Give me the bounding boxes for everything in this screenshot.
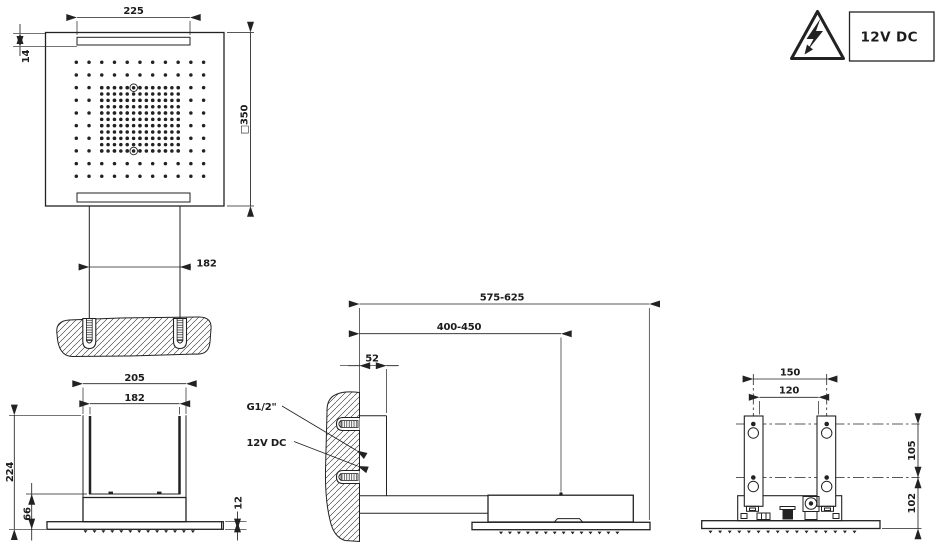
dim-text-182-ceiling: 182	[196, 259, 217, 270]
valve-center	[809, 501, 813, 505]
dim-text-52: 52	[365, 354, 379, 365]
dim-plate-thickness: 12	[225, 496, 247, 540]
mounting-rails	[90, 416, 180, 494]
nozzle-strip	[84, 530, 195, 533]
dim-text-400-450: 400-450	[437, 322, 482, 333]
nozzle-strip	[499, 532, 619, 535]
dim-text-66: 66	[23, 507, 34, 521]
voltage-label: 12V DC	[861, 30, 918, 46]
front-view: 205 182 224 66 12	[5, 373, 247, 541]
technical-drawing-sheet: 225 14 □350 182	[0, 0, 940, 547]
dim-anchor-spacing-h: 150	[753, 368, 826, 380]
plan-view: 225 14 □350	[13, 6, 254, 206]
rail-left	[744, 416, 763, 506]
dim-text-225: 225	[123, 6, 144, 17]
screw-head-left	[109, 492, 114, 494]
power-connection-label: 12V DC	[247, 438, 287, 449]
ceiling-hatch	[57, 317, 211, 357]
nozzle-grid	[75, 61, 206, 178]
electric-warning-badge: 12V DC	[792, 12, 935, 62]
drawing-svg: 225 14 □350 182	[0, 0, 940, 547]
ceiling-anchor-left	[83, 319, 96, 349]
rail-right	[817, 416, 836, 506]
mount-step	[360, 416, 387, 496]
wall-screw-upper	[337, 418, 360, 431]
dim-inner-width: 182	[90, 393, 180, 415]
dim-text-224: 224	[5, 462, 16, 483]
dim-text-120: 120	[779, 386, 800, 397]
bottom-slot	[77, 193, 190, 202]
dim-head-center-reach: 400-450	[360, 322, 563, 496]
water-connection-label: G1/2"	[247, 402, 277, 413]
rear-view: 150 120 105 102	[702, 368, 922, 534]
shower-plate	[702, 521, 880, 529]
dim-body-height: 66	[23, 483, 88, 541]
top-slot	[77, 37, 190, 45]
wall-screw-lower	[337, 471, 360, 484]
ceiling-mount-section: 182	[57, 206, 217, 357]
head-housing	[488, 495, 633, 522]
dim-anchor-to-bottom: 102	[882, 478, 922, 529]
dim-total-reach: 575-625	[360, 293, 650, 521]
support-arm	[360, 496, 489, 514]
shower-plate	[47, 522, 223, 530]
wall-hatch	[325, 392, 359, 542]
nozzle-strip	[709, 531, 857, 534]
side-view: 575-625 400-450 52 G1/2" 12V DC	[247, 293, 651, 542]
dim-slot-length: 225	[77, 6, 190, 35]
dark-fitting	[783, 510, 794, 520]
dim-text-575-625: 575-625	[480, 293, 525, 304]
dim-inner-width: 120	[760, 386, 819, 415]
dim-text-350: □350	[240, 105, 251, 135]
dim-anchor-spacing: 182	[89, 259, 217, 270]
dim-text-14: 14	[21, 50, 32, 64]
dim-text-105: 105	[907, 440, 918, 461]
dim-text-150: 150	[780, 368, 801, 379]
dim-text-182-front: 182	[124, 393, 145, 404]
dim-total-height: 224	[5, 415, 81, 529]
housing-box	[83, 498, 186, 522]
dim-text-205: 205	[124, 373, 145, 384]
dim-anchor-spacing-v: 105	[907, 424, 918, 478]
mounting-rods	[89, 206, 180, 318]
ceiling-anchor-right	[174, 319, 187, 349]
screw-head-right	[157, 492, 162, 494]
dim-square-size: □350	[227, 33, 254, 207]
body-side-walls	[83, 415, 186, 497]
dim-text-102: 102	[907, 493, 918, 514]
dim-text-12: 12	[234, 496, 245, 510]
head-plate	[472, 522, 650, 529]
